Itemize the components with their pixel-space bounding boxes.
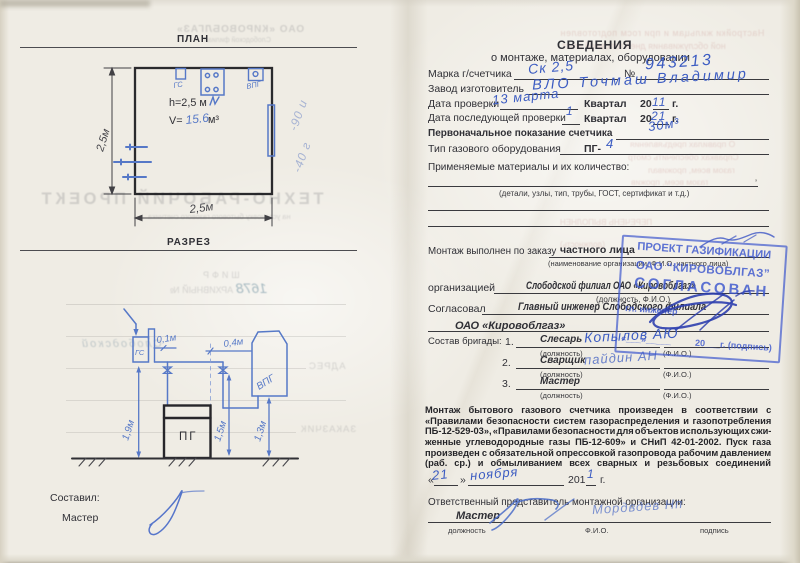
svg-text:2,5м: 2,5м — [94, 127, 113, 154]
svg-text:15.6: 15.6 — [185, 111, 210, 127]
svg-text:ВПГ: ВПГ — [246, 79, 263, 91]
svg-text:0,4м: 0,4м — [223, 336, 245, 350]
svg-text:V=: V= — [169, 115, 183, 127]
svg-text:ГС: ГС — [135, 348, 145, 357]
svg-text:2,5м: 2,5м — [188, 201, 214, 216]
svg-text:ПГ: ПГ — [179, 431, 198, 443]
svg-text:ВПГ: ВПГ — [255, 372, 279, 392]
svg-text:h=2,5 м: h=2,5 м — [169, 97, 207, 109]
svg-text:ГС: ГС — [173, 79, 184, 90]
svg-text:0,1м: 0,1м — [156, 332, 178, 346]
svg-text:1,5м: 1,5м — [212, 420, 229, 443]
svg-text:1,9м: 1,9м — [120, 419, 137, 442]
svg-text:м³: м³ — [208, 114, 219, 126]
svg-text:1,3м: 1,3м — [252, 420, 269, 443]
